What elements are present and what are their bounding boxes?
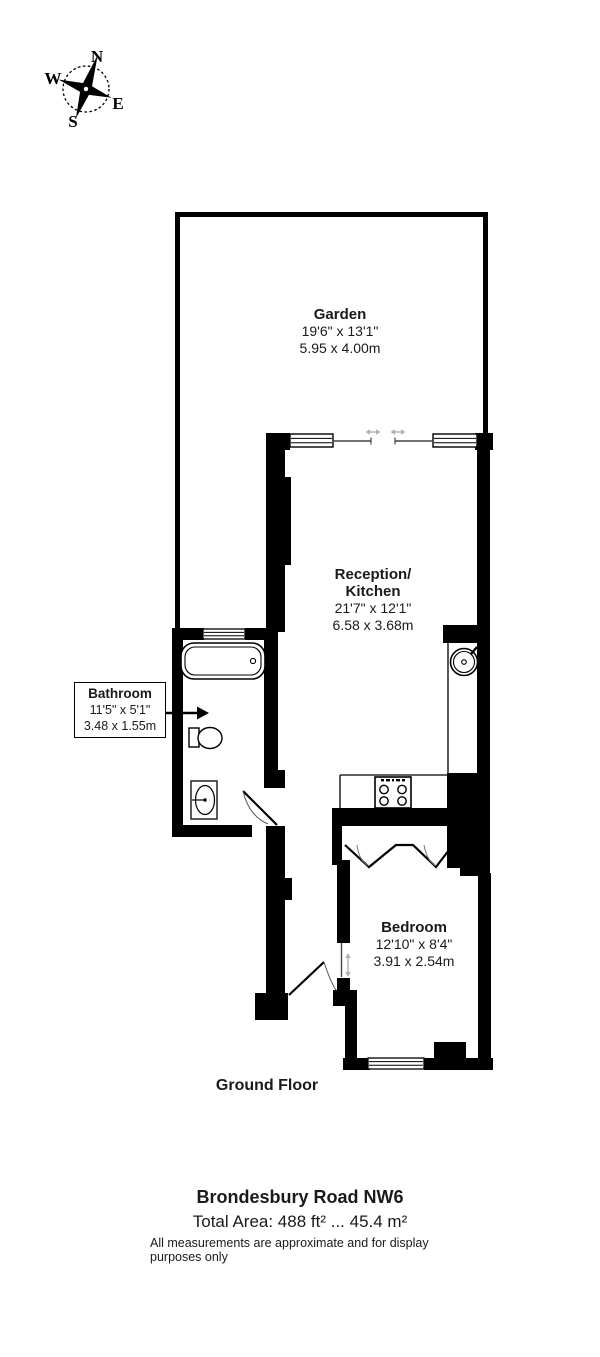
- bathroom-name: Bathroom: [76, 685, 164, 702]
- hob-icon: [375, 777, 411, 808]
- floorplan-drawing: N W E S: [0, 0, 600, 1357]
- compass-east: E: [112, 94, 123, 113]
- reception-label: Reception/ Kitchen 21'7" x 12'1" 6.58 x …: [333, 566, 414, 634]
- floorplan-page: N W E S: [0, 0, 600, 1357]
- hall-walls: [255, 826, 292, 1020]
- compass-west: W: [45, 69, 62, 88]
- reception-metric: 6.58 x 3.68m: [333, 617, 414, 634]
- sliding-door-arrow-icon: [345, 953, 351, 977]
- bedroom-name: Bedroom: [374, 919, 455, 936]
- compass-south: S: [68, 112, 77, 131]
- bathtub-icon: [181, 643, 265, 679]
- bedroom-window: [368, 1058, 424, 1069]
- reception-name-line2: Kitchen: [333, 583, 414, 600]
- garden-label: Garden 19'6" x 13'1" 5.95 x 4.00m: [300, 306, 381, 357]
- reception-imperial: 21'7" x 12'1": [333, 600, 414, 617]
- entrance-door: [289, 962, 338, 995]
- bedroom-metric: 3.91 x 2.54m: [374, 953, 455, 970]
- reception-name-line1: Reception/: [333, 566, 414, 583]
- bathroom-imperial: 11'5" x 5'1": [76, 702, 164, 718]
- sliding-door-arrow-icon: [366, 429, 381, 435]
- garden-imperial: 19'6" x 13'1": [300, 323, 381, 340]
- bathroom-window: [203, 629, 245, 639]
- bathroom-metric: 3.48 x 1.55m: [76, 718, 164, 734]
- disclaimer-text: All measurements are approximate and for…: [150, 1236, 450, 1264]
- total-area-text: Total Area: 488 ft² ... 45.4 m²: [193, 1212, 408, 1232]
- bedroom-label: Bedroom 12'10" x 8'4" 3.91 x 2.54m: [374, 919, 455, 970]
- floor-title: Ground Floor: [216, 1077, 318, 1095]
- garden-name: Garden: [300, 306, 381, 323]
- address-title: Brondesbury Road NW6: [196, 1187, 403, 1208]
- toilet-icon: [189, 728, 222, 749]
- compass-north: N: [91, 47, 104, 66]
- bathroom-door: [243, 791, 277, 825]
- bathroom-basin-icon: [191, 781, 217, 819]
- bifold-doors: [345, 845, 449, 867]
- bedroom-imperial: 12'10" x 8'4": [374, 936, 455, 953]
- compass-icon: N W E S: [45, 46, 124, 131]
- garden-metric: 5.95 x 4.00m: [300, 340, 381, 357]
- patio-windows-and-sliding-doors: [290, 429, 477, 447]
- kitchen-sink-icon: [451, 647, 478, 676]
- bathroom-callout-arrow-icon: [162, 707, 209, 720]
- garden-walls: [175, 212, 488, 632]
- bedroom-sliding-door: [342, 943, 351, 977]
- sliding-door-arrow-icon: [391, 429, 406, 435]
- bathroom-label-box: Bathroom 11'5" x 5'1" 3.48 x 1.55m: [74, 682, 166, 738]
